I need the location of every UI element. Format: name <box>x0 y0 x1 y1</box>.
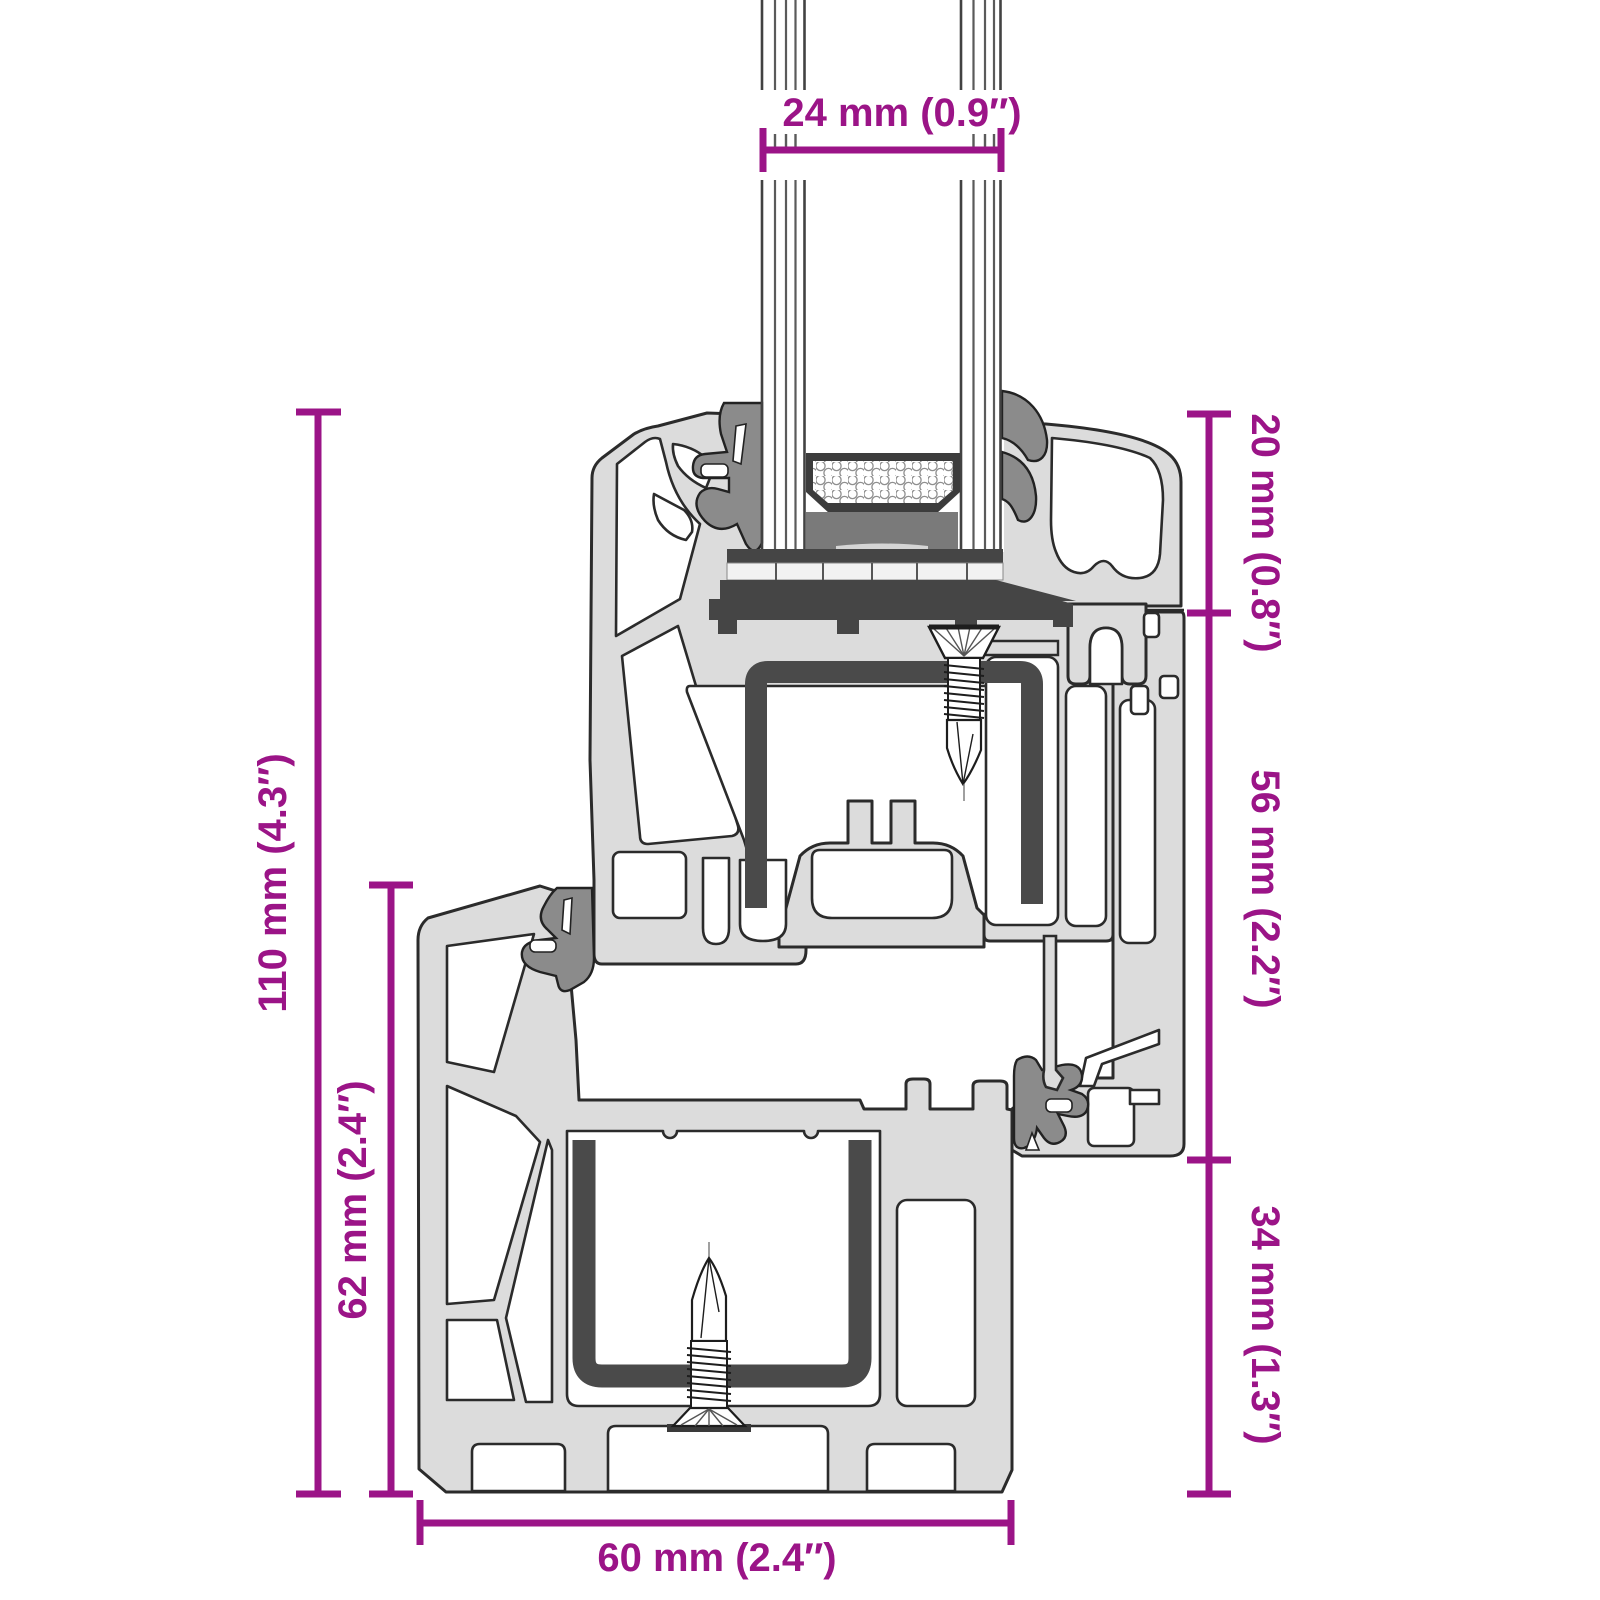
svg-text:24 mm (0.9″): 24 mm (0.9″) <box>782 91 1021 135</box>
svg-text:110 mm (4.3″): 110 mm (4.3″) <box>251 753 295 1012</box>
svg-text:56 mm (2.2″): 56 mm (2.2″) <box>1243 769 1287 1008</box>
svg-text:20 mm (0.8″): 20 mm (0.8″) <box>1243 413 1287 652</box>
svg-text:62 mm (2.4″): 62 mm (2.4″) <box>331 1080 375 1319</box>
svg-text:34 mm (1.3″): 34 mm (1.3″) <box>1243 1205 1287 1444</box>
svg-text:60 mm (2.4″): 60 mm (2.4″) <box>597 1536 836 1580</box>
